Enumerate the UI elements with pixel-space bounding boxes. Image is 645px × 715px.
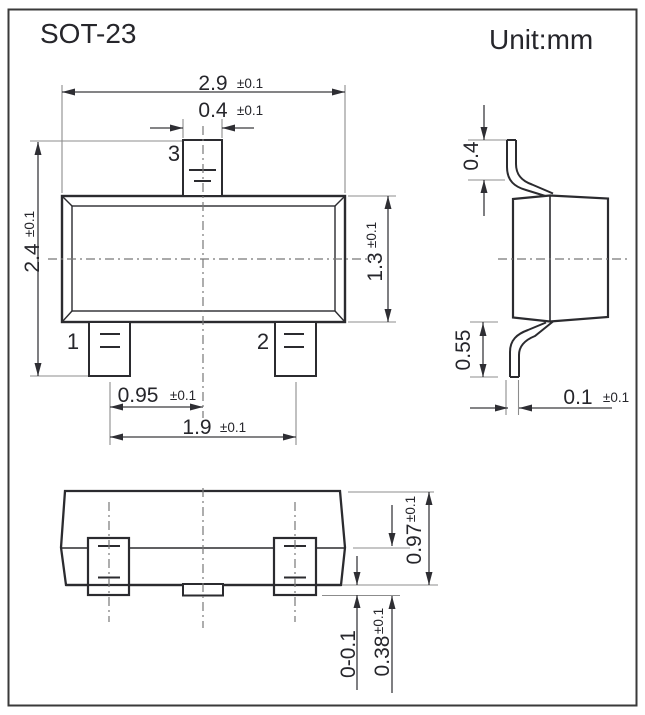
arrowhead	[354, 595, 361, 608]
dim-lower-lead-value: 0.55	[452, 330, 475, 371]
pin3-label: 3	[168, 141, 180, 166]
dim-body-length-value: 1.3	[364, 252, 387, 281]
arrowhead	[332, 89, 345, 96]
side-view: 0.4 0.55 0.1 ±0.1	[452, 105, 629, 415]
front-view: 0.97 ±0.1 0-0.1 0.38 ±0.1	[61, 488, 438, 693]
dim-body-height-value: 0.97	[403, 524, 426, 565]
pin2-pad	[275, 322, 316, 376]
arrowhead	[481, 127, 488, 140]
package-drawing-page: SOT-23 Unit:mm	[0, 0, 645, 715]
arrowhead	[283, 434, 296, 441]
dim-lead-thickness-value: 0.1	[563, 386, 592, 409]
pin2-label: 2	[257, 329, 269, 354]
arrowhead	[480, 364, 487, 377]
dim-pin3-width-tol: ±0.1	[237, 103, 263, 118]
dim-overall-length-tol: ±0.1	[22, 211, 37, 237]
dim-pin3-width-value: 0.4	[198, 99, 228, 122]
arrowhead	[389, 596, 396, 609]
dim-pin-pitch-tol: ±0.1	[170, 388, 196, 403]
arrowhead	[35, 142, 42, 155]
arrowhead	[480, 323, 487, 336]
arrowhead	[385, 196, 392, 209]
pin1-label: 1	[67, 329, 79, 354]
dim-body-height-tol: ±0.1	[403, 496, 418, 522]
dim-body-length-tol: ±0.1	[364, 222, 379, 248]
arrowhead	[222, 125, 235, 132]
arrowhead	[426, 572, 433, 585]
arrowhead	[519, 405, 532, 412]
dim-standoff-value: 0-0.1	[337, 630, 360, 678]
arrowhead	[35, 363, 42, 376]
lower-lead	[510, 322, 553, 378]
dim-upper-lead-value: 0.4	[460, 141, 483, 171]
arrowhead	[385, 309, 392, 322]
arrowhead	[426, 492, 433, 505]
dim-body-width-tol: ±0.1	[237, 76, 263, 91]
dim-pin-pitch-value: 0.95	[118, 384, 159, 407]
arrowhead	[110, 434, 123, 441]
drawing-title: SOT-23	[40, 18, 136, 49]
dim-body-width-value: 2.9	[198, 72, 227, 95]
dim-overall-length-value: 2.4	[21, 243, 44, 273]
arrowhead	[389, 533, 396, 546]
dim-pin-span-tol: ±0.1	[220, 420, 246, 435]
dim-lead-height-value: 0.38	[371, 636, 394, 677]
upper-lead	[507, 140, 553, 197]
arrowhead	[170, 125, 183, 132]
top-view: 2.9 ±0.1 0.4 ±0.1 2.4 ±0.1 1.3 ±0.1 0.95…	[21, 72, 396, 445]
dim-lead-height-tol: ±0.1	[371, 608, 386, 634]
sot23-dimension-drawing: SOT-23 Unit:mm	[0, 0, 645, 715]
arrowhead	[190, 404, 203, 411]
pin1-pad	[89, 322, 130, 376]
arrowhead	[354, 572, 361, 585]
arrowhead	[62, 89, 75, 96]
arrowhead	[481, 180, 488, 193]
dim-lead-thickness-tol: ±0.1	[603, 390, 629, 405]
unit-label: Unit:mm	[489, 24, 593, 55]
dim-pin-span-value: 1.9	[182, 416, 211, 439]
